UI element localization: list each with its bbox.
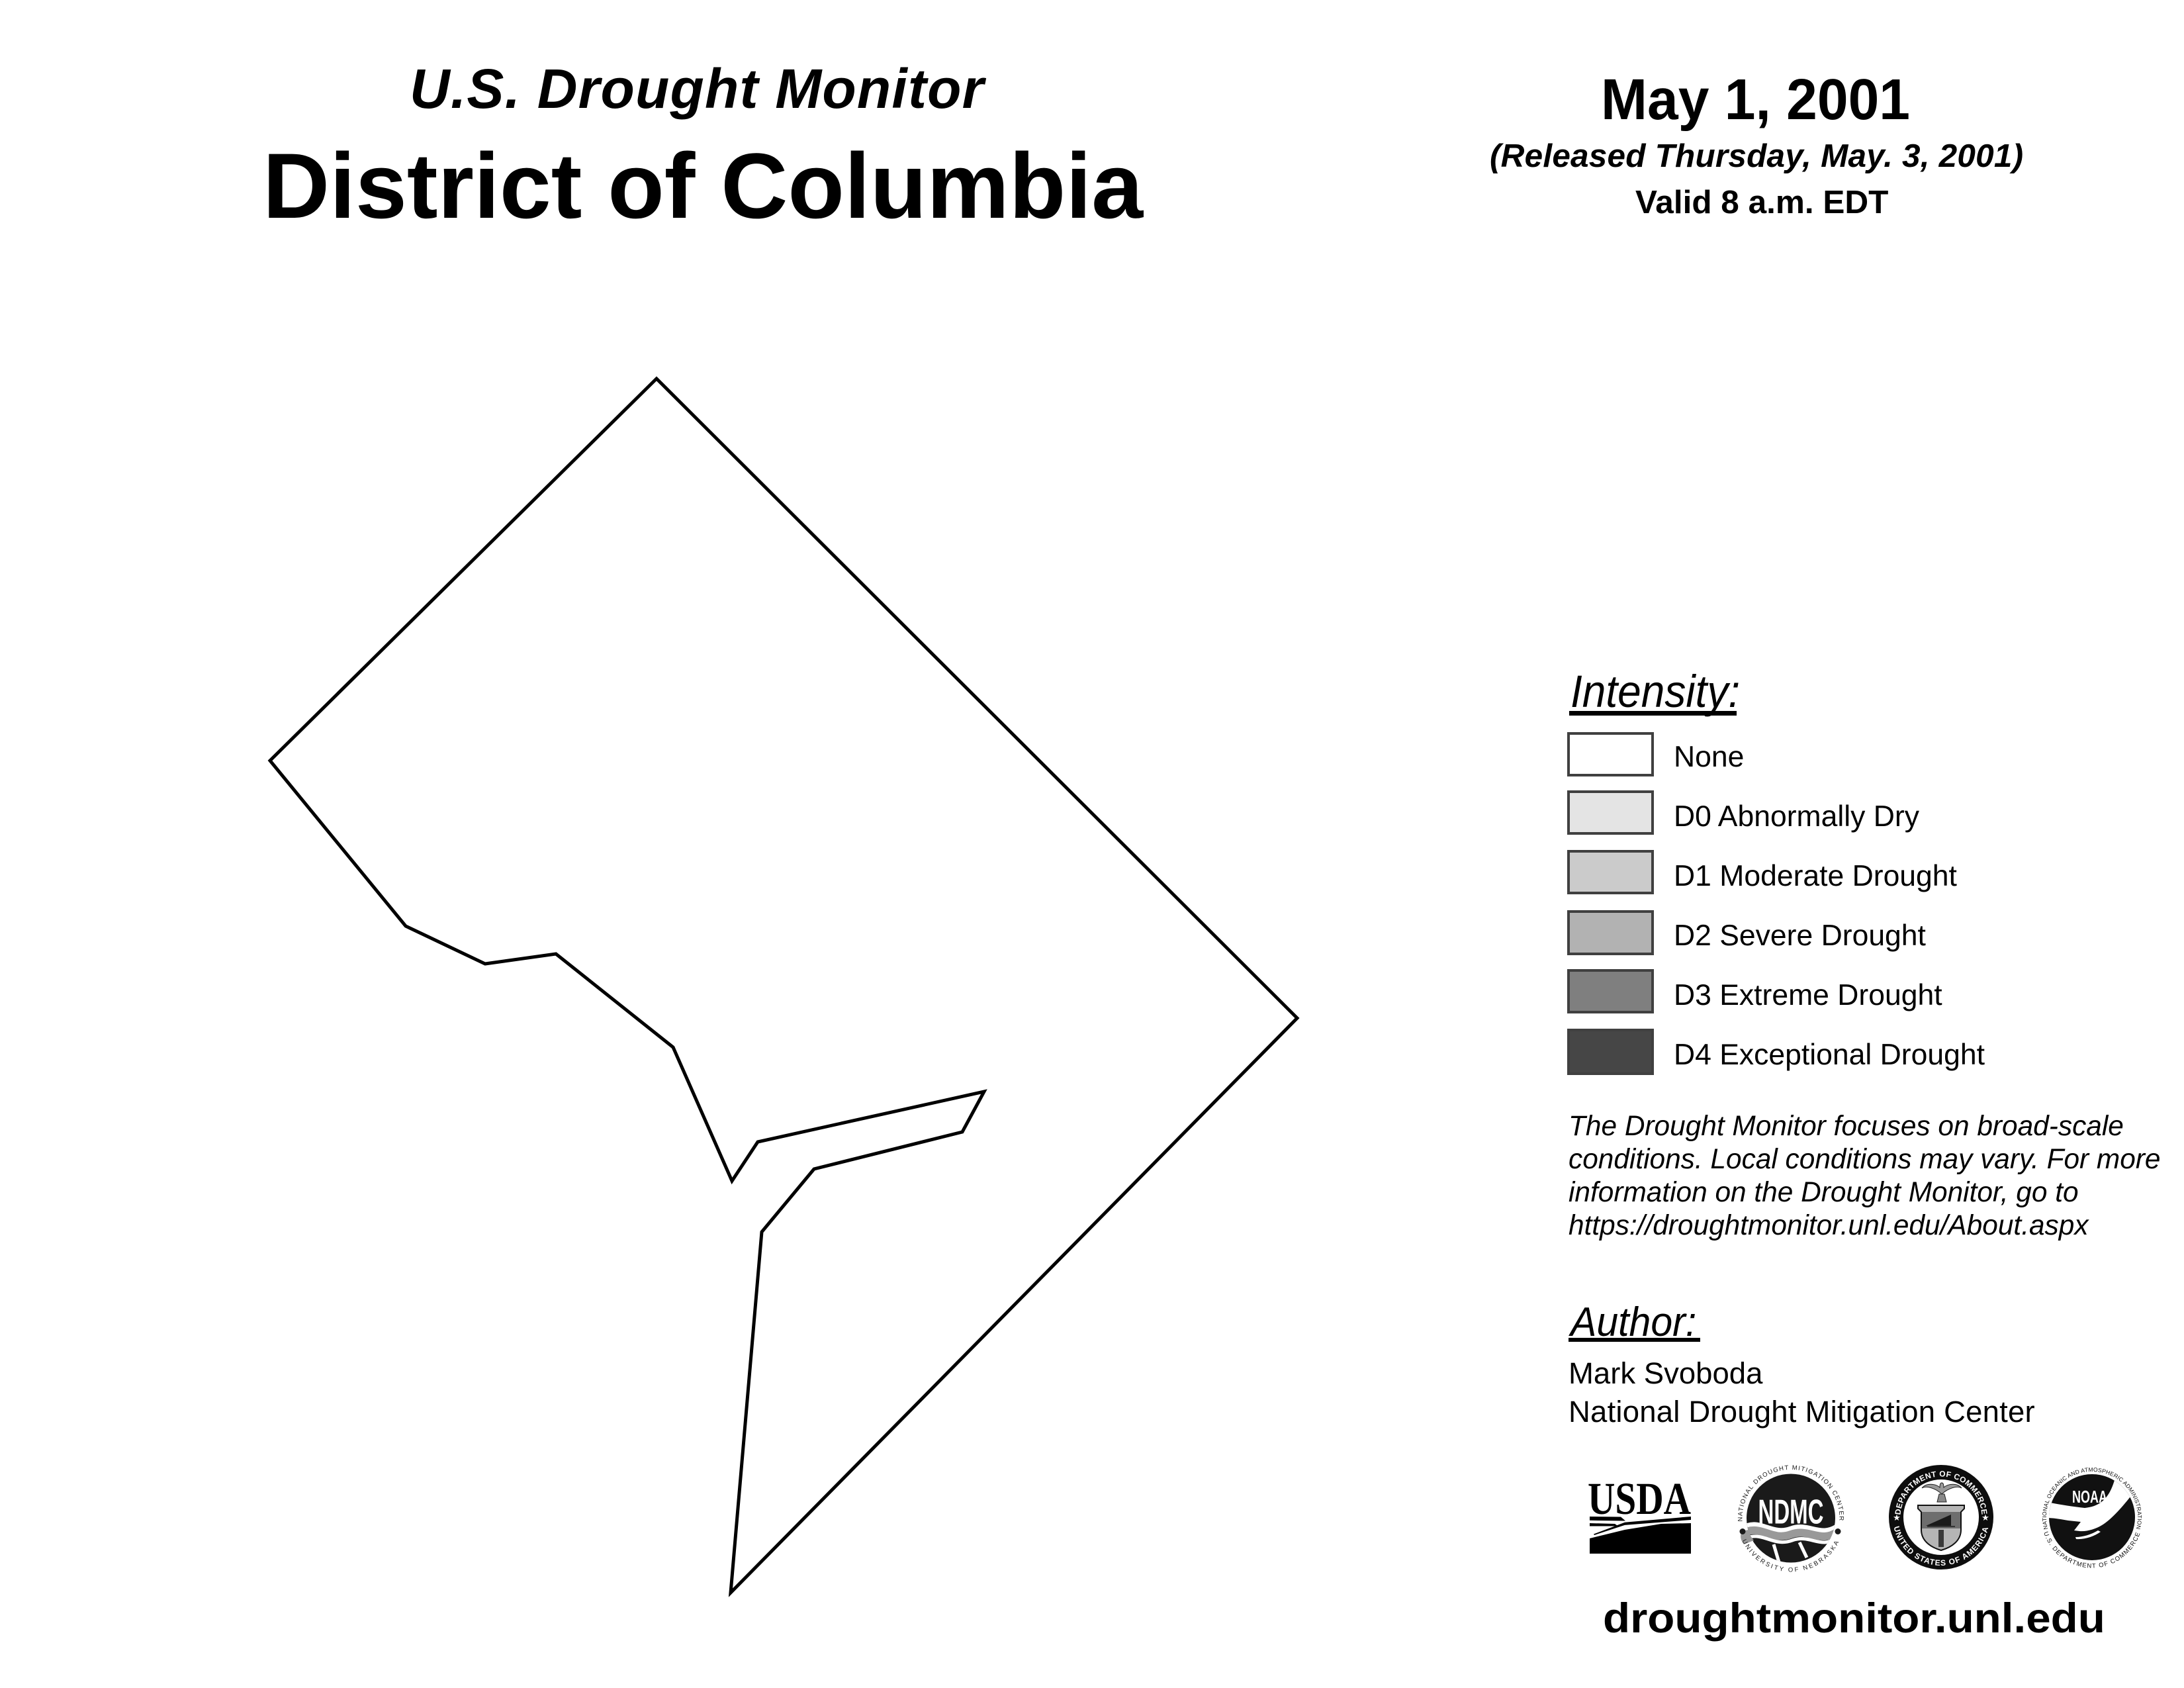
svg-text:★: ★ [1981, 1513, 1989, 1523]
svg-text:★: ★ [1893, 1513, 1901, 1523]
svg-text:NDMC: NDMC [1758, 1493, 1824, 1532]
svg-text:USDA: USDA [1588, 1476, 1691, 1524]
svg-text:NOAA: NOAA [2072, 1487, 2107, 1507]
